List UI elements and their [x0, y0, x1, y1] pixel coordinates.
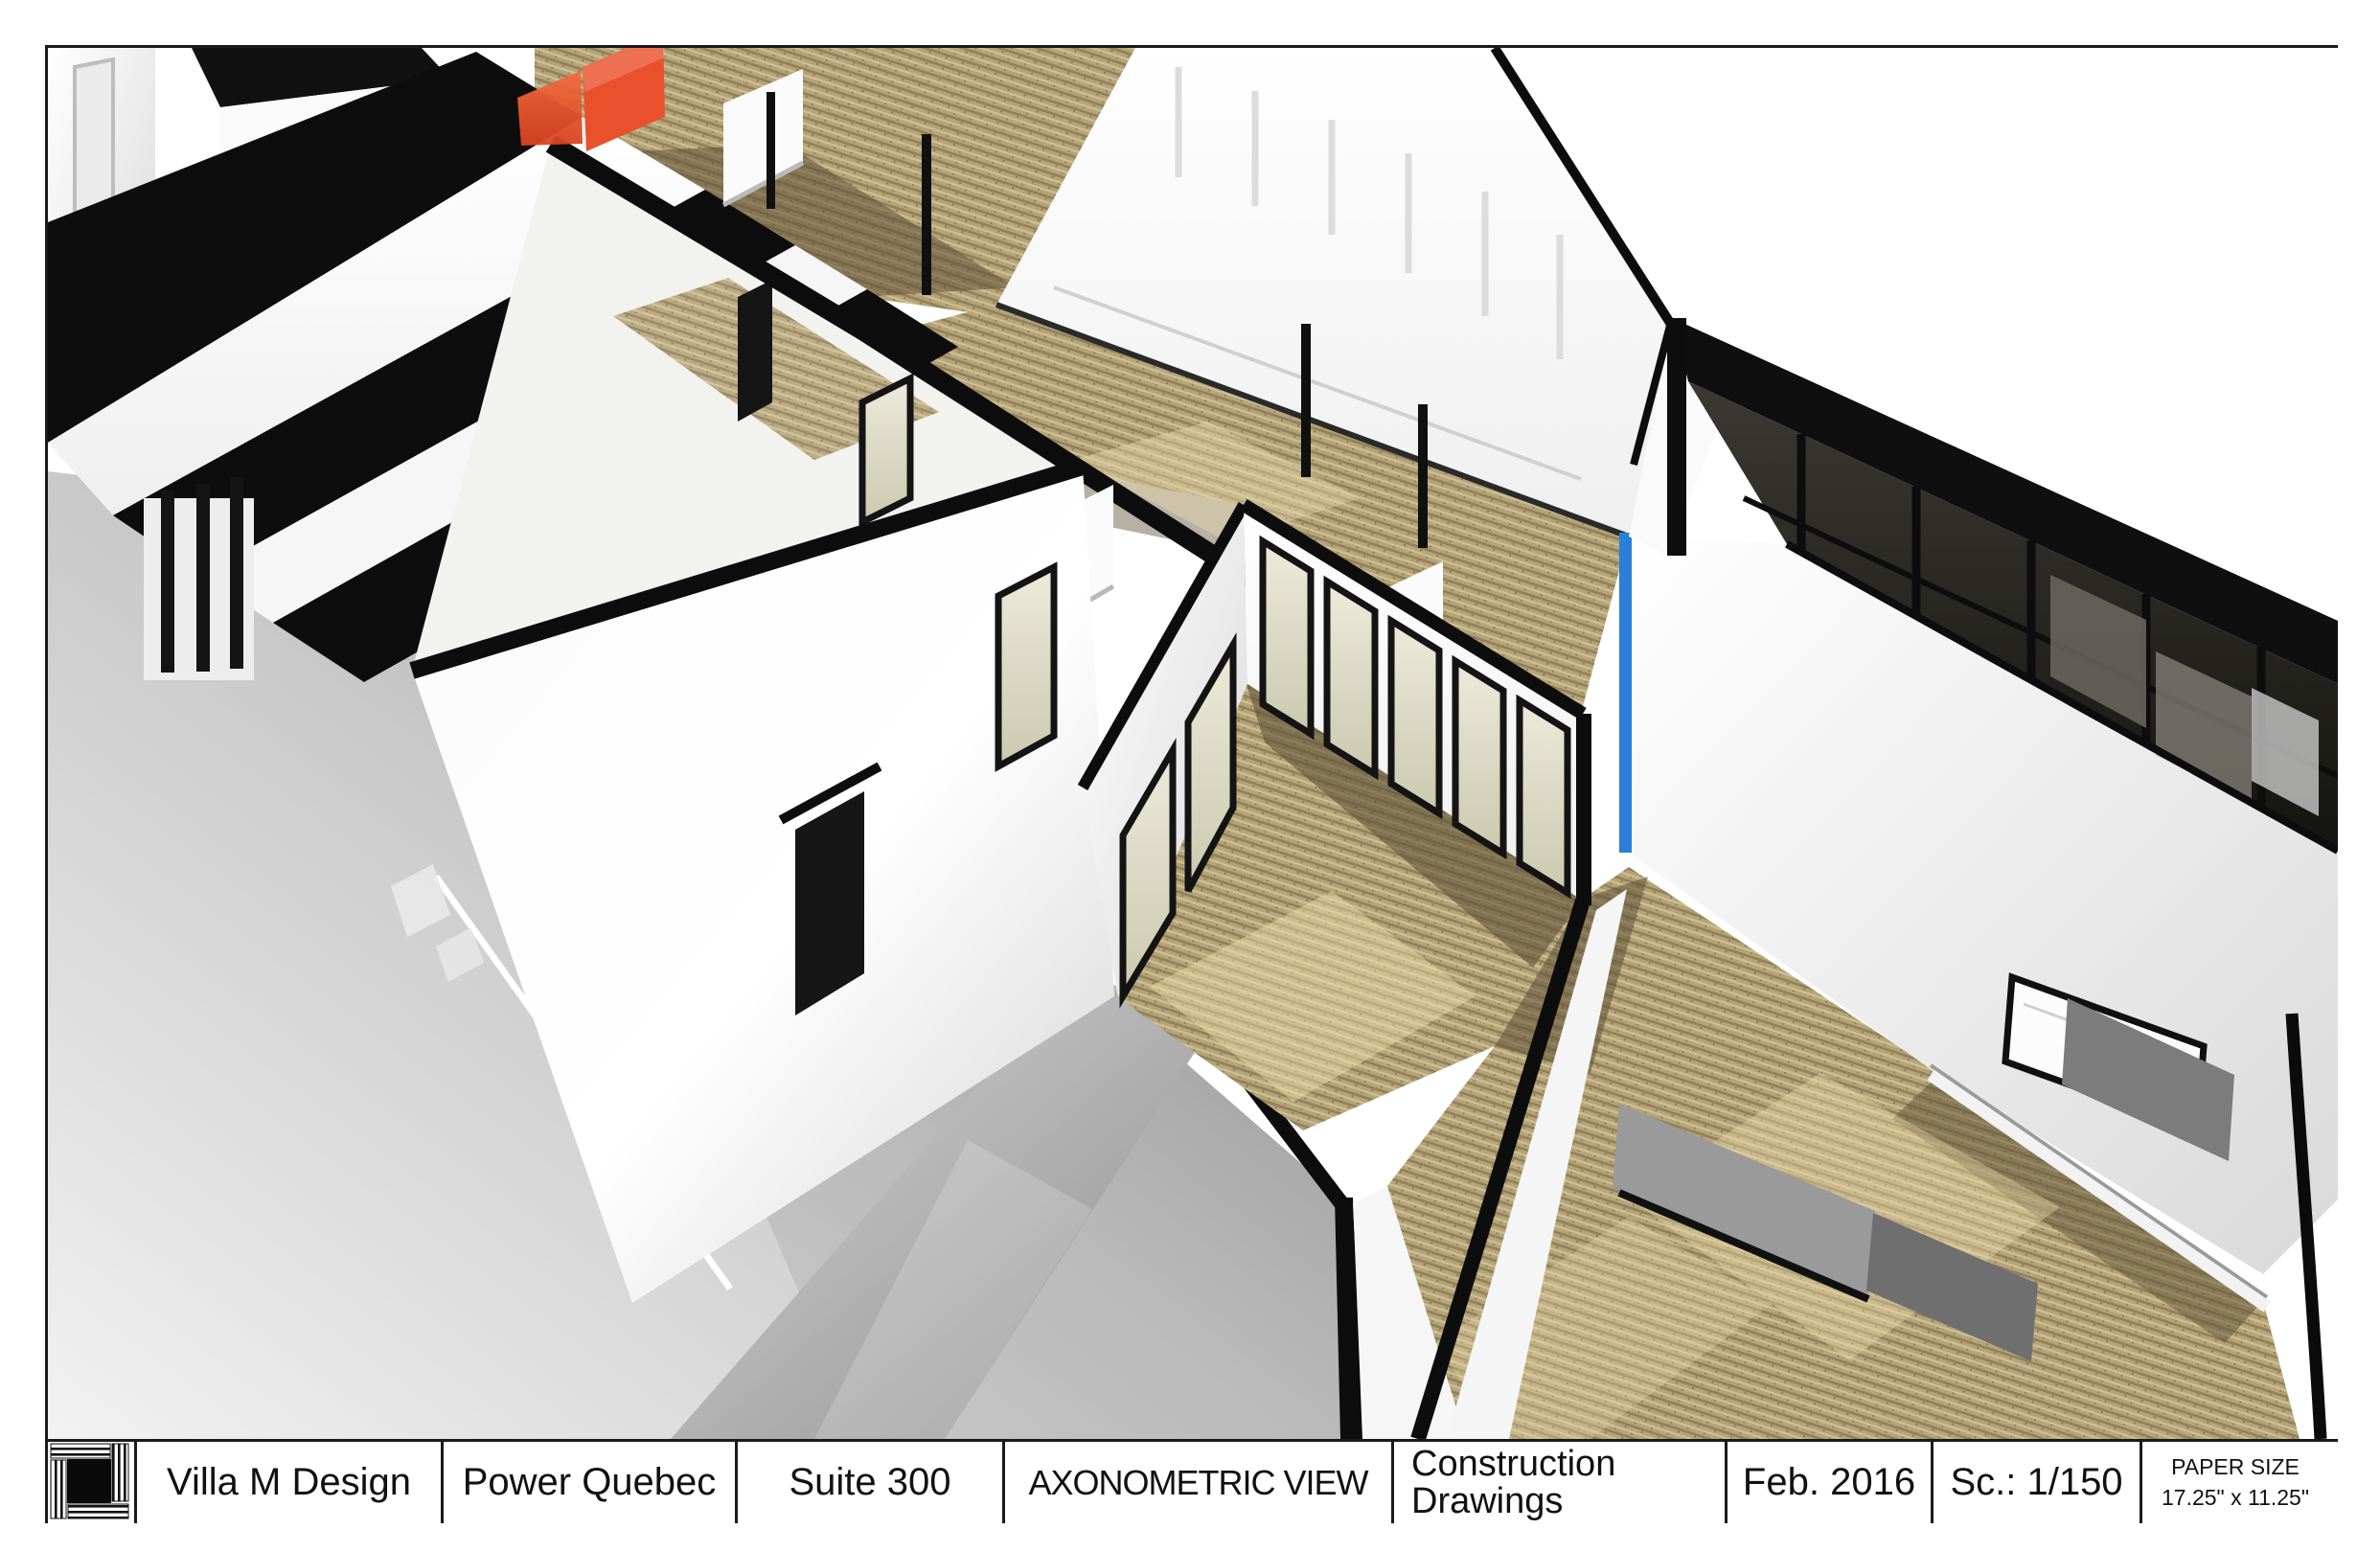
logo: [48, 1442, 134, 1523]
suite-label: Suite 300: [789, 1461, 950, 1504]
interior-window: [1327, 582, 1375, 774]
drawing-scale: Sc.: 1/150: [1950, 1461, 2122, 1504]
interior-window: [1455, 661, 1503, 854]
title-block: Villa M Design Power Quebec Suite 300 AX…: [48, 1439, 2338, 1523]
drawing-sheet: Villa M Design Power Quebec Suite 300 AX…: [0, 0, 2380, 1552]
titleblock-view-title-cell: AXONOMETRIC VIEW: [1002, 1442, 1391, 1523]
client-name: Power Quebec: [463, 1461, 717, 1504]
titleblock-suite-cell: Suite 300: [735, 1442, 1002, 1523]
interior-window: [1520, 700, 1568, 893]
blue-accent-strip: [1619, 533, 1632, 853]
titleblock-drawing-set-cell: Construction Drawings: [1391, 1442, 1725, 1523]
titleblock-client-cell: Power Quebec: [441, 1442, 735, 1523]
door: [738, 280, 772, 422]
drawing-set-line1: Construction: [1411, 1446, 1615, 1483]
drawing-date: Feb. 2016: [1743, 1461, 1915, 1504]
interior-window: [1263, 541, 1311, 734]
drawing-set-line2: Drawings: [1411, 1483, 1563, 1520]
glazed-door: [998, 567, 1054, 766]
titleblock-date-cell: Feb. 2016: [1725, 1442, 1931, 1523]
interior-window: [1391, 621, 1439, 813]
titleblock-scale-cell: Sc.: 1/150: [1931, 1442, 2140, 1523]
paper-size-value: 17.25" x 11.25": [2162, 1483, 2309, 1513]
paper-size-label: PAPER SIZE: [2171, 1452, 2300, 1482]
axonometric-rendering: [48, 48, 2338, 1439]
designer-name: Villa M Design: [167, 1461, 411, 1504]
glazed-door: [862, 378, 910, 522]
titleblock-designer-cell: Villa M Design: [134, 1442, 441, 1523]
villa-m-logo-icon: [49, 1442, 133, 1520]
view-title: AXONOMETRIC VIEW: [1028, 1463, 1367, 1503]
titleblock-paper-size-cell: PAPER SIZE 17.25" x 11.25": [2140, 1442, 2328, 1523]
